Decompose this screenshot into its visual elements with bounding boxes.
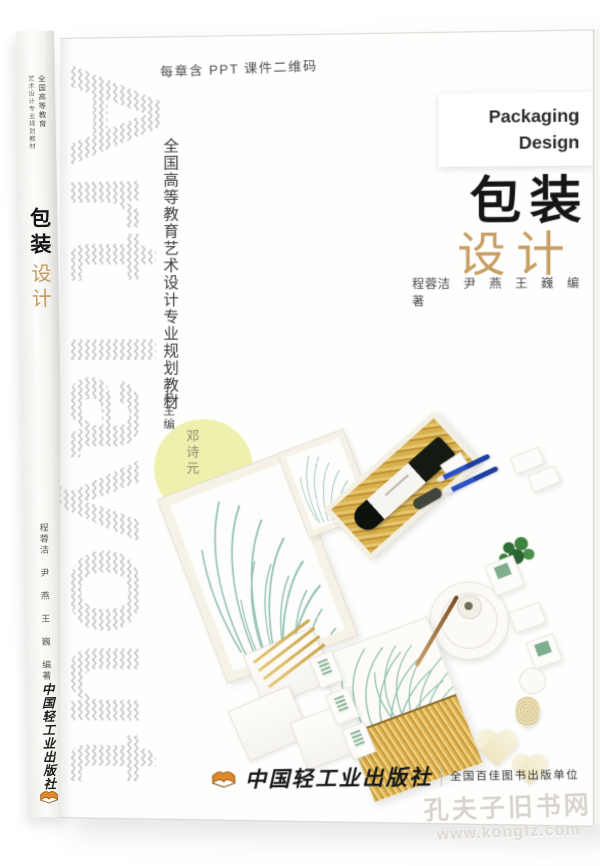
mini-print [350, 730, 366, 749]
kongfz-watermark: 孔夫子旧书网 www.kongfz.com [423, 785, 593, 845]
twine-coil [515, 696, 540, 727]
side-card-2 [525, 633, 562, 669]
wheat-stalks [246, 626, 325, 691]
publisher-name: 中国轻工业出版社 [244, 761, 432, 794]
mini-print [334, 695, 350, 714]
green-stamp [494, 563, 512, 580]
publisher-divider [440, 766, 442, 786]
title-english-line2: Design [519, 129, 593, 157]
publisher-badge: 全国百佳图书出版单位 [450, 766, 580, 784]
packaging-flatlay-photo [162, 407, 542, 786]
authors-line: 程蓉洁 尹 燕 王 巍 编著 [412, 274, 590, 310]
publisher-logo-icon [210, 769, 237, 789]
bottle-label-line [384, 474, 409, 496]
green-stamp [534, 640, 552, 656]
title-english-line1: Packaging [489, 102, 593, 130]
teacup [457, 595, 482, 620]
top-card-2 [527, 465, 561, 493]
wine-bottle [348, 436, 456, 535]
side-plate [519, 667, 546, 694]
book-product-photo: 艺术设计专业规划教材 全国高等教育 包装 设计 程蓉洁 尹 燕 王 巍 编著 中… [0, 0, 600, 866]
side-card-1 [508, 602, 547, 634]
watermark-site-name: 孔夫子旧书网 [423, 785, 592, 827]
ppt-qr-note: 每章含 PPT 课件二维码 [160, 55, 318, 81]
page-block-edge [593, 29, 600, 824]
spine-series-col-left: 艺术设计专业规划教材 [24, 75, 35, 150]
series-title: 全国高等教育艺术设计专业规划教材 [156, 132, 182, 417]
title-english-panel: Packaging Design [439, 92, 593, 167]
book-front-cover: 每章含 PPT 课件二维码 Art layout 全国高等教育艺术设计专业规划教… [60, 29, 593, 826]
book-body: 每章含 PPT 课件二维码 Art layout 全国高等教育艺术设计专业规划教… [60, 29, 600, 824]
